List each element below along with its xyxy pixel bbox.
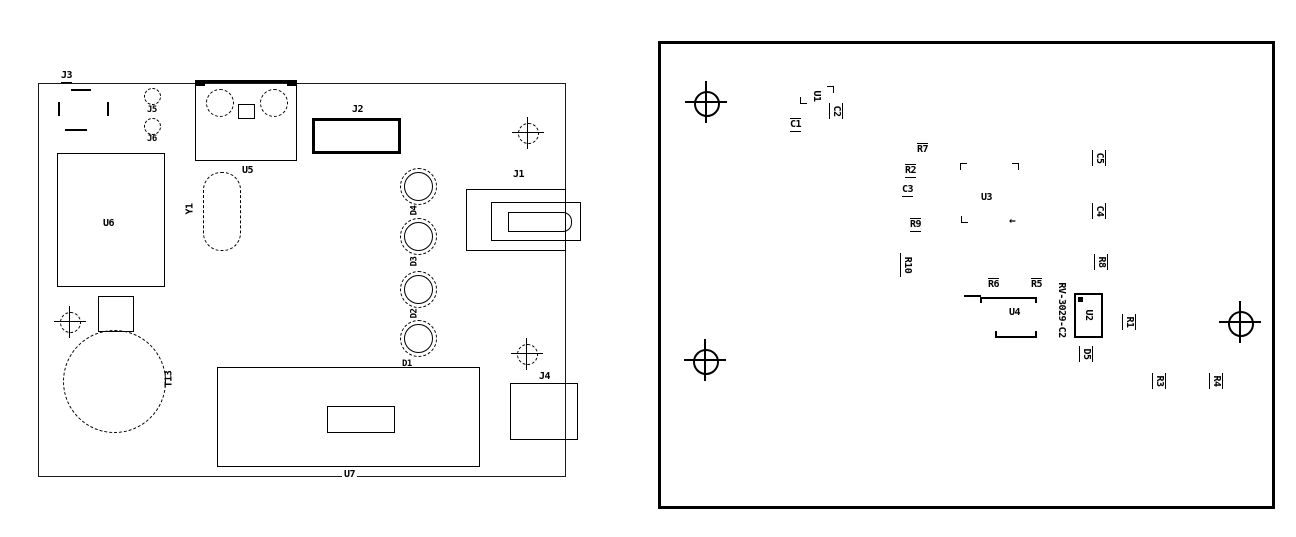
fiducial-circle (694, 91, 720, 117)
ref-r4: R4 (1209, 373, 1223, 389)
u2-pin1-dot (1078, 297, 1083, 302)
ref-c3: C3 (902, 185, 913, 197)
ref-u5: U5 (242, 166, 253, 176)
u3-pin1-arrow-icon: ← (1009, 217, 1016, 225)
j4-body (510, 383, 578, 440)
ref-d3: D3 (410, 257, 419, 267)
ref-u1: U1 (811, 88, 821, 104)
u4-tick-tr (1035, 297, 1037, 303)
ref-c4: C4 (1092, 203, 1106, 219)
fiducial-circle (693, 349, 719, 375)
ref-r5: R5 (1031, 278, 1042, 290)
u4-tick-br (1035, 331, 1037, 337)
ref-j4: J4 (539, 372, 550, 382)
u4-tick-bl (995, 331, 997, 337)
ref-j1: J1 (513, 170, 524, 180)
fiducial-vline (527, 117, 528, 149)
u3-corner-bl (961, 216, 968, 223)
fiducial-vline (705, 81, 707, 123)
j6-hole (144, 118, 161, 135)
u5-hole-left (206, 89, 234, 117)
d3-body (404, 222, 433, 251)
ref-d4: D4 (410, 206, 419, 216)
ref-r6: R6 (988, 278, 999, 290)
j3-pad-top (71, 89, 91, 91)
ref-r3: R3 (1152, 373, 1166, 389)
d1-body (404, 324, 433, 353)
ref-r9: R9 (910, 218, 921, 232)
ref-j5: J5 (147, 106, 157, 115)
ref-d2: D2 (410, 309, 419, 319)
ref-u4: U4 (1009, 308, 1020, 318)
right-board-outline: U1 C2 C1 R7 R2 C3 R9 U3 ← C5 C4 R8 R10 R… (658, 41, 1275, 509)
fiducial-vline (1239, 301, 1241, 343)
y1-body (203, 172, 241, 251)
j3-pad-left (58, 102, 60, 116)
fiducial-vline (526, 338, 527, 370)
u7-window (327, 406, 395, 433)
ref-u6: U6 (103, 219, 114, 229)
fiducial-circle (518, 123, 539, 144)
j3-pad-bottom (65, 129, 87, 131)
u5-key (238, 104, 255, 119)
u1-corner-mark-left (800, 97, 807, 104)
u5-body (195, 80, 297, 161)
ref-r7: R7 (917, 143, 928, 155)
u4-edge-bottom (995, 336, 1037, 338)
u3-corner-tr (1012, 163, 1019, 170)
pcb-assembly-drawing: J3 J5 J6 U5 Y1 U6 J2 (0, 0, 1296, 537)
ref-d5: D5 (1079, 346, 1093, 362)
fiducial-hline (511, 353, 543, 354)
u2-body: U2 (1074, 293, 1103, 338)
ref-j3: J3 (61, 71, 72, 83)
ref-t13: T13 (164, 371, 174, 388)
t13-body (63, 330, 166, 433)
ref-j2: J2 (352, 105, 363, 115)
u4-tick-tl (980, 297, 982, 303)
ref-r8: R8 (1094, 254, 1108, 270)
d2-body (404, 275, 433, 304)
ref-j6: J6 (147, 135, 157, 144)
fiducial-circle (60, 312, 81, 333)
u5-pin-right (287, 82, 296, 86)
ref-r10: R10 (900, 253, 912, 277)
fiducial-circle (1228, 311, 1254, 337)
u1-corner-mark-right (827, 86, 834, 93)
u4-edge-top (980, 297, 1037, 299)
u5-pin-left (196, 82, 205, 86)
ref-c2: C2 (829, 103, 843, 119)
fiducial-hline (512, 132, 544, 133)
ref-r1: R1 (1122, 314, 1136, 330)
u4-edge-ext (964, 295, 981, 297)
j2-body (312, 118, 401, 154)
fiducial-vline (704, 339, 706, 381)
ref-c1: C1 (790, 118, 801, 132)
d4-body (404, 172, 433, 201)
ref-rtc-part-number: RV-3029-C2 (1056, 270, 1066, 350)
ref-u2: U2 (1083, 307, 1093, 323)
j5-hole (144, 88, 161, 105)
ref-c5: C5 (1092, 150, 1106, 166)
u5-hole-right (260, 89, 288, 117)
battery-tab (98, 296, 134, 332)
ref-r2: R2 (905, 164, 916, 178)
fiducial-circle (517, 344, 538, 365)
ref-y1: Y1 (186, 203, 196, 214)
u3-corner-tl (960, 163, 967, 170)
ref-u7: U7 (342, 470, 357, 480)
j1-tongue (508, 212, 572, 232)
fiducial-vline (69, 306, 70, 338)
ref-u3: U3 (981, 193, 992, 203)
left-board-outline: J3 J5 J6 U5 Y1 U6 J2 (38, 83, 566, 477)
fiducial-hline (54, 321, 86, 322)
j3-pad-right (107, 102, 109, 116)
